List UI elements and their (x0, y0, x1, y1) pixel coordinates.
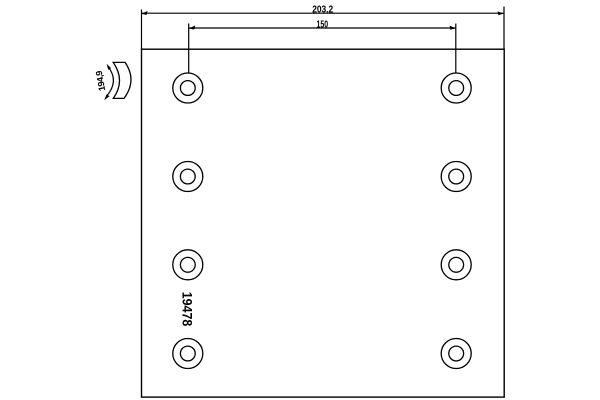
svg-text:203.2: 203.2 (312, 5, 333, 16)
svg-text:150: 150 (317, 19, 329, 30)
svg-text:194,9: 194,9 (94, 70, 107, 92)
svg-text:19478: 19478 (180, 292, 196, 327)
